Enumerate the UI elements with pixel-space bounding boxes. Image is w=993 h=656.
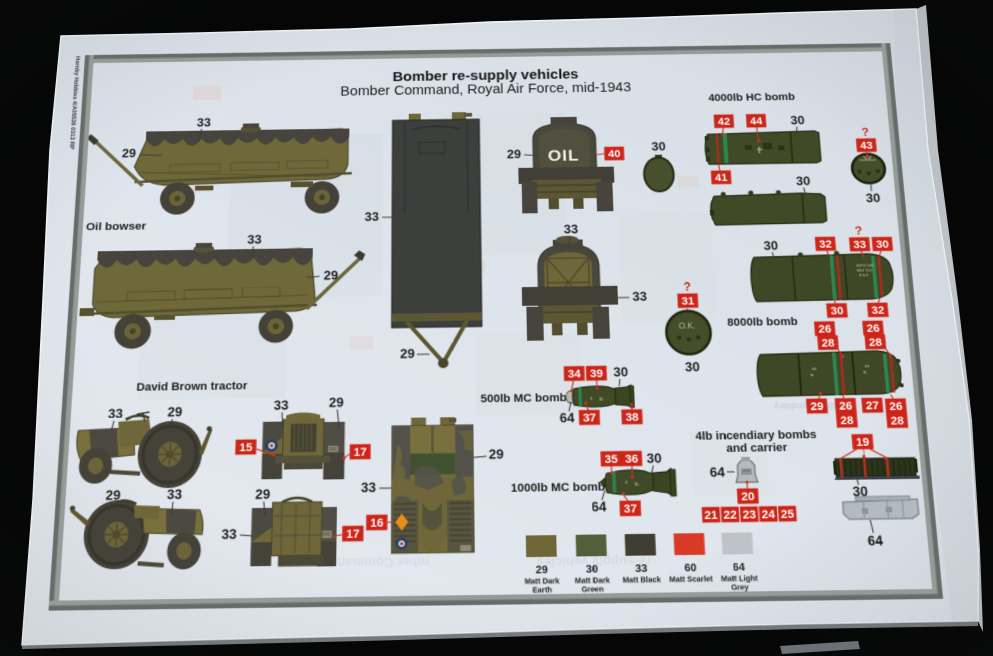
svg-text:29: 29 [400,347,415,361]
svg-text:David Brown tractor: David Brown tractor [136,381,247,395]
svg-text:26: 26 [839,401,853,413]
svg-text:38: 38 [625,412,639,424]
svg-text:30: 30 [651,140,666,153]
svg-text:33: 33 [197,117,212,130]
svg-text:37: 37 [583,413,597,425]
svg-text:29: 29 [122,147,137,160]
svg-text:33: 33 [108,407,124,422]
svg-text:28: 28 [821,338,835,350]
svg-text:4000lb HC bomb: 4000lb HC bomb [708,92,795,104]
svg-text:O.K.: O.K. [678,321,695,331]
svg-text:Matt Black: Matt Black [622,576,661,585]
svg-text:26: 26 [818,324,832,336]
svg-text:30: 30 [790,114,806,127]
svg-text:OIL: OIL [548,148,580,165]
svg-text:37: 37 [624,503,638,516]
svg-text:33: 33 [635,563,648,575]
svg-text:33: 33 [167,488,183,503]
svg-text:32: 32 [871,305,885,317]
svg-text:25: 25 [780,509,794,522]
svg-text:33: 33 [221,527,237,542]
svg-text:28: 28 [890,416,904,428]
svg-text:and carrier: and carrier [726,442,788,455]
svg-text:29: 29 [536,564,548,576]
svg-text:Matt Dark: Matt Dark [575,577,611,586]
svg-text:22: 22 [723,509,737,522]
svg-text:20: 20 [741,491,755,504]
svg-text:500lb MC bomb: 500lb MC bomb [480,392,566,405]
svg-text:64: 64 [812,367,817,371]
svg-text:?: ? [683,281,691,294]
svg-text:33: 33 [274,399,290,413]
svg-text:30: 30 [876,239,890,251]
svg-text:32: 32 [819,239,833,251]
svg-text:Green: Green [581,586,603,595]
svg-text:Matt Scarlet: Matt Scarlet [669,576,714,585]
svg-text:33: 33 [564,223,579,237]
svg-text:Hornby Hobbies 4/A05536 0313 R: Hornby Hobbies 4/A05536 0313 RP [68,56,81,150]
svg-text:30: 30 [830,306,844,318]
svg-text:64: 64 [591,500,607,515]
svg-text:30: 30 [865,192,881,205]
svg-text:28: 28 [869,337,883,349]
svg-text:36: 36 [625,454,639,467]
svg-text:26: 26 [866,323,880,335]
svg-text:21: 21 [704,510,718,523]
svg-text:64: 64 [867,534,884,549]
svg-text:4lb incendiary bombs: 4lb incendiary bombs [695,429,817,443]
svg-text:29: 29 [489,447,505,462]
svg-text:15: 15 [239,442,253,454]
svg-text:24: 24 [761,509,775,522]
svg-text:39: 39 [590,368,604,380]
svg-text:60: 60 [684,562,697,574]
svg-text:30: 30 [763,239,779,253]
svg-text:43: 43 [860,141,874,152]
svg-text:29: 29 [324,269,339,283]
svg-text:23: 23 [742,509,756,522]
svg-text:64: 64 [865,364,870,368]
svg-text:33: 33 [247,233,262,247]
svg-text:42: 42 [718,117,731,128]
svg-text:?: ? [854,225,863,237]
svg-text:mber Command: mber Command [329,554,429,569]
svg-text:8000lb bomb: 8000lb bomb [727,316,798,329]
svg-text:17: 17 [346,529,360,542]
svg-text:30: 30 [796,175,812,188]
svg-text:lb: lb [863,370,867,374]
svg-text:AVRO LNC: AVRO LNC [856,263,875,267]
svg-text:34: 34 [568,369,582,381]
svg-text:64: 64 [732,561,746,573]
svg-text:33: 33 [365,211,380,225]
svg-text:29: 29 [810,401,824,413]
svg-text:41: 41 [715,173,728,184]
svg-text:64: 64 [559,411,575,426]
svg-text:35: 35 [604,454,618,467]
svg-text:Matt Light: Matt Light [721,575,759,584]
svg-text:29: 29 [255,487,271,502]
svg-text:1000lb MC bomb: 1000lb MC bomb [511,481,606,495]
svg-text:29: 29 [105,488,121,503]
svg-text:30: 30 [685,360,701,374]
svg-text:30: 30 [613,365,629,379]
svg-text:Oil bowser: Oil bowser [86,220,148,233]
svg-text:40: 40 [608,149,621,160]
svg-text:44: 44 [750,116,763,127]
svg-text:Earth: Earth [532,587,552,595]
svg-text:33: 33 [853,240,867,252]
svg-text:33: 33 [632,290,648,304]
svg-text:29: 29 [329,396,345,410]
svg-text:30: 30 [586,563,599,575]
svg-text:31: 31 [681,296,695,308]
svg-text:17: 17 [354,447,368,459]
svg-text:?: ? [861,127,870,139]
svg-text:16: 16 [370,517,384,530]
svg-text:MK4 TLD: MK4 TLD [857,268,873,272]
svg-text:Grey: Grey [731,584,749,592]
svg-text:26: 26 [889,401,903,413]
svg-text:28: 28 [840,415,854,427]
svg-text:Matt Dark: Matt Dark [525,578,561,587]
svg-text:Bomber Command, Royal Air Forc: Bomber Command, Royal Air Force, mid-194… [340,80,631,99]
svg-text:R.A.F: R.A.F [859,273,869,277]
svg-text:64: 64 [709,465,725,480]
svg-text:30: 30 [646,452,662,467]
svg-text:27: 27 [865,400,879,412]
svg-text:33: 33 [361,481,377,496]
svg-text:4lb incendiary: 4lb incendiary [773,400,839,412]
svg-text:lb: lb [810,373,814,377]
svg-text:19: 19 [856,437,870,449]
svg-text:29: 29 [167,405,183,420]
svg-text:29: 29 [507,148,522,161]
